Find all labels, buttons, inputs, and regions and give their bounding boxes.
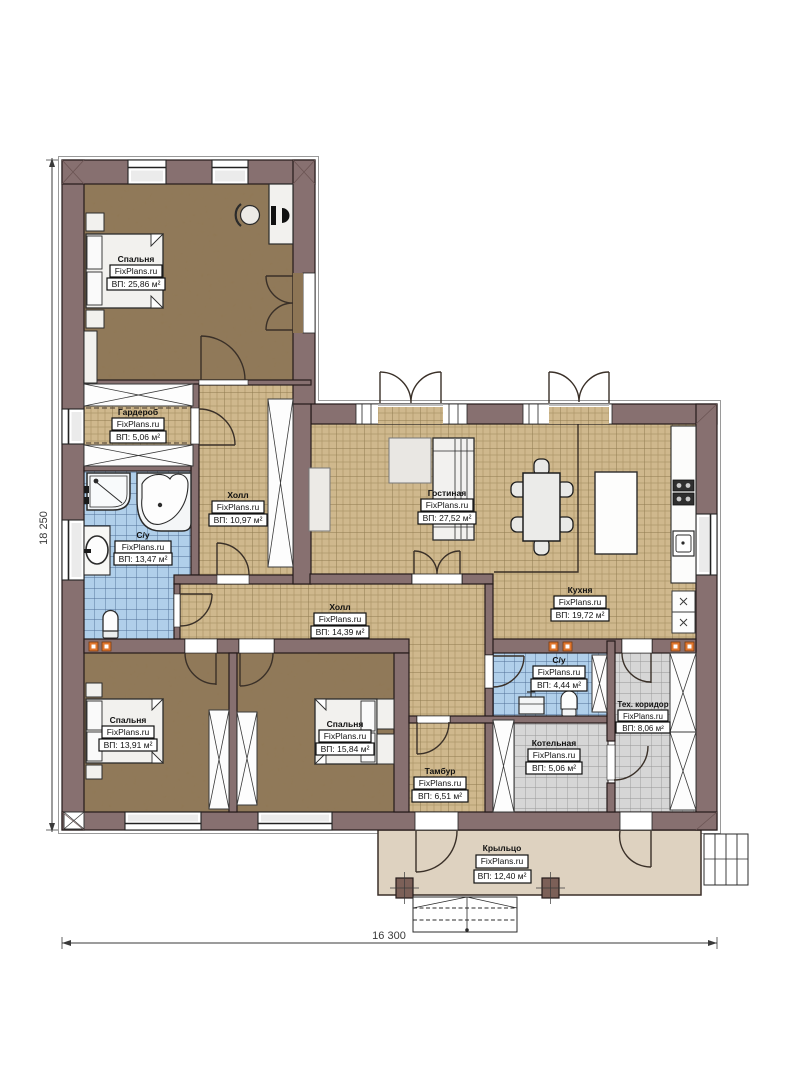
svg-text:ВП: 12,40 м²: ВП: 12,40 м² bbox=[478, 871, 527, 881]
svg-text:FixPlans.ru: FixPlans.ru bbox=[117, 419, 160, 429]
svg-text:Холл: Холл bbox=[329, 602, 350, 612]
svg-text:FixPlans.ru: FixPlans.ru bbox=[324, 731, 367, 741]
svg-text:С/у: С/у bbox=[552, 655, 566, 665]
svg-text:FixPlans.ru: FixPlans.ru bbox=[481, 856, 524, 866]
svg-text:FixPlans.ru: FixPlans.ru bbox=[107, 727, 150, 737]
svg-text:ВП: 25,86 м²: ВП: 25,86 м² bbox=[112, 279, 161, 289]
svg-text:Крыльцо: Крыльцо bbox=[483, 843, 522, 853]
svg-text:FixPlans.ru: FixPlans.ru bbox=[533, 750, 576, 760]
svg-text:Спальня: Спальня bbox=[118, 254, 155, 264]
svg-text:Гардероб: Гардероб bbox=[118, 407, 158, 417]
svg-text:Спальня: Спальня bbox=[110, 715, 147, 725]
svg-text:Кухня: Кухня bbox=[568, 585, 593, 595]
svg-text:ВП: 5,06 м²: ВП: 5,06 м² bbox=[116, 432, 160, 442]
svg-text:FixPlans.ru: FixPlans.ru bbox=[623, 712, 663, 721]
svg-text:FixPlans.ru: FixPlans.ru bbox=[115, 266, 158, 276]
svg-text:Гостиная: Гостиная bbox=[428, 488, 466, 498]
svg-text:ВП: 10,97 м²: ВП: 10,97 м² bbox=[214, 515, 263, 525]
svg-text:ВП: 27,52 м²: ВП: 27,52 м² bbox=[423, 513, 472, 523]
svg-text:ВП: 15,84 м²: ВП: 15,84 м² bbox=[321, 744, 370, 754]
svg-text:ВП: 13,47 м²: ВП: 13,47 м² bbox=[119, 554, 168, 564]
svg-text:С/у: С/у bbox=[136, 530, 150, 540]
svg-text:ВП: 5,06 м²: ВП: 5,06 м² bbox=[532, 763, 576, 773]
svg-text:ВП: 14,39 м²: ВП: 14,39 м² bbox=[316, 627, 365, 637]
svg-text:ВП: 6,51 м²: ВП: 6,51 м² bbox=[418, 791, 462, 801]
svg-text:FixPlans.ru: FixPlans.ru bbox=[319, 614, 362, 624]
svg-text:FixPlans.ru: FixPlans.ru bbox=[559, 597, 602, 607]
svg-text:Холл: Холл bbox=[227, 490, 248, 500]
svg-text:FixPlans.ru: FixPlans.ru bbox=[122, 542, 165, 552]
svg-text:ВП: 4,44 м²: ВП: 4,44 м² bbox=[537, 680, 581, 690]
svg-text:FixPlans.ru: FixPlans.ru bbox=[419, 778, 462, 788]
svg-text:ВП: 8,06 м²: ВП: 8,06 м² bbox=[622, 724, 664, 733]
svg-text:16 300: 16 300 bbox=[372, 930, 406, 942]
svg-text:Тех. коридор: Тех. коридор bbox=[617, 700, 668, 709]
svg-text:ВП: 19,72 м²: ВП: 19,72 м² bbox=[556, 610, 605, 620]
svg-text:ВП: 13,91 м²: ВП: 13,91 м² bbox=[104, 740, 153, 750]
svg-text:Спальня: Спальня bbox=[327, 719, 364, 729]
svg-text:FixPlans.ru: FixPlans.ru bbox=[217, 502, 260, 512]
svg-text:18 250: 18 250 bbox=[38, 511, 50, 545]
svg-text:Котельная: Котельная bbox=[532, 738, 577, 748]
svg-text:FixPlans.ru: FixPlans.ru bbox=[426, 500, 469, 510]
svg-text:FixPlans.ru: FixPlans.ru bbox=[538, 667, 581, 677]
svg-text:Тамбур: Тамбур bbox=[425, 766, 456, 776]
